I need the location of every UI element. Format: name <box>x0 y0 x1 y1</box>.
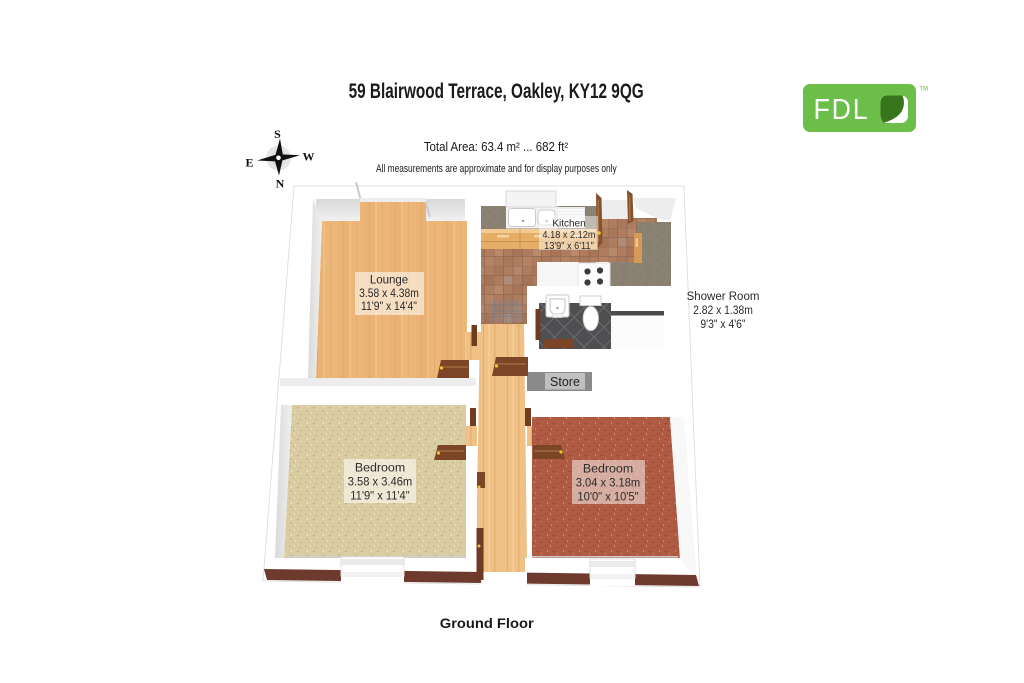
svg-text:Store: Store <box>550 375 580 389</box>
svg-text:Shower Room: Shower Room <box>687 291 760 303</box>
svg-text:Bedroom: Bedroom <box>355 461 405 475</box>
svg-text:Lounge: Lounge <box>370 275 408 287</box>
svg-text:11'9" x 14'4": 11'9" x 14'4" <box>361 301 417 314</box>
svg-text:S: S <box>274 127 281 141</box>
svg-text:4.18 x 2.12m: 4.18 x 2.12m <box>542 230 595 241</box>
svg-text:E: E <box>245 155 253 169</box>
svg-text:10'0" x 10'5": 10'0" x 10'5" <box>577 490 638 504</box>
svg-text:Kitchen: Kitchen <box>552 219 585 230</box>
svg-text:3.58 x 3.46m: 3.58 x 3.46m <box>348 475 413 489</box>
svg-text:3.58 x 4.38m: 3.58 x 4.38m <box>359 287 419 300</box>
svg-text:Bedroom: Bedroom <box>583 462 633 476</box>
svg-text:13'9" x 6'11": 13'9" x 6'11" <box>544 241 594 252</box>
svg-text:3.04 x 3.18m: 3.04 x 3.18m <box>576 476 641 490</box>
svg-text:2.82 x 1.38m: 2.82 x 1.38m <box>693 305 753 318</box>
svg-text:11'9" x 11'4": 11'9" x 11'4" <box>350 489 409 503</box>
svg-text:FDL: FDL <box>814 94 870 126</box>
svg-text:W: W <box>303 149 315 163</box>
svg-text:9'3" x 4'6": 9'3" x 4'6" <box>700 319 745 332</box>
svg-text:TM: TM <box>920 87 929 93</box>
